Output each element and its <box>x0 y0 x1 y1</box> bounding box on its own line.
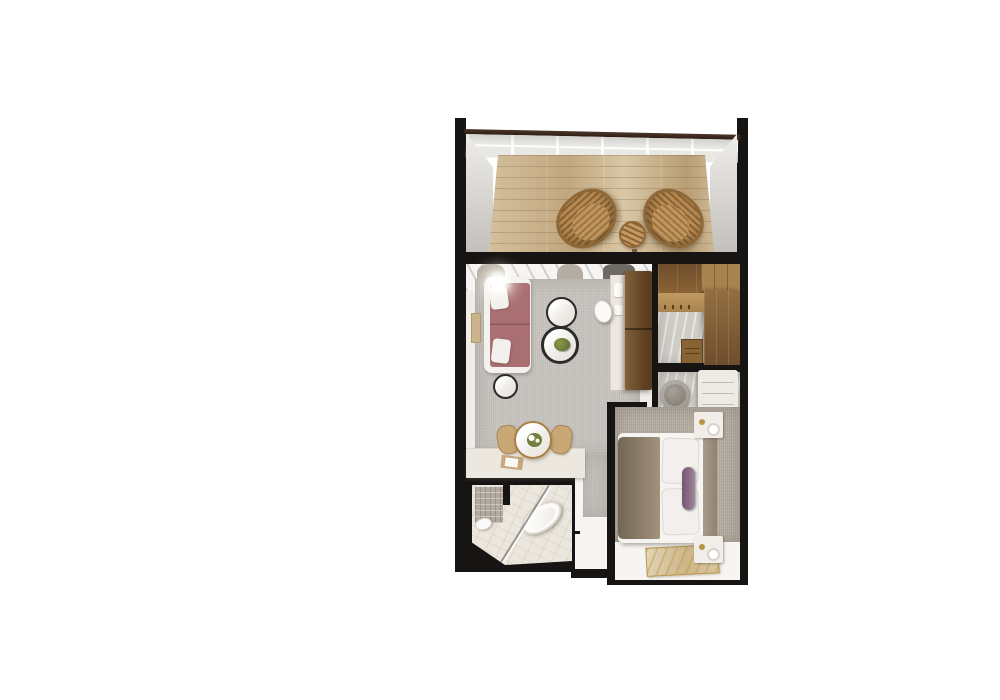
wall-art <box>471 313 481 343</box>
sofa <box>484 277 531 373</box>
floor-lamp <box>491 276 505 290</box>
coffee-table-small <box>546 297 577 328</box>
closet-wardrobe <box>704 290 740 365</box>
dining-table <box>514 421 552 459</box>
closet-dresser <box>681 339 703 365</box>
bolster-pillow <box>682 467 695 510</box>
headboard <box>703 431 717 545</box>
sofa-pillow <box>491 338 512 364</box>
coffee-table-large <box>541 326 579 364</box>
entry-door <box>701 264 740 291</box>
desk-item <box>614 283 623 297</box>
double-bed <box>618 433 705 543</box>
table-lamp <box>707 423 720 436</box>
background-trim <box>455 572 571 585</box>
bedroom-wall-left <box>607 402 615 585</box>
nightstand-top <box>694 412 723 438</box>
desk <box>610 275 625 390</box>
closet-bottom-wall <box>658 363 704 372</box>
side-table <box>493 374 518 399</box>
media-cabinet <box>625 271 652 390</box>
bathroom-wall-stub <box>503 485 510 505</box>
desk-item <box>614 305 623 315</box>
gold-bowl <box>699 544 705 550</box>
gold-bowl <box>699 419 705 425</box>
potted-plant <box>554 338 570 351</box>
nightstand-bottom <box>694 536 723 563</box>
closet-hanging-rail <box>658 293 704 312</box>
floor-plan-render <box>0 0 1000 700</box>
entry-pouf <box>660 380 690 410</box>
suite-floor-plan <box>455 113 748 585</box>
book <box>505 457 519 468</box>
hallway-rug-runner <box>583 455 607 517</box>
bed-throw-blanket <box>618 437 660 539</box>
bathroom-door-handle <box>575 531 580 534</box>
wicker-side-table <box>619 221 646 248</box>
background-trim <box>571 578 607 585</box>
table-lamp <box>707 548 720 561</box>
flower-centerpiece <box>527 433 542 447</box>
